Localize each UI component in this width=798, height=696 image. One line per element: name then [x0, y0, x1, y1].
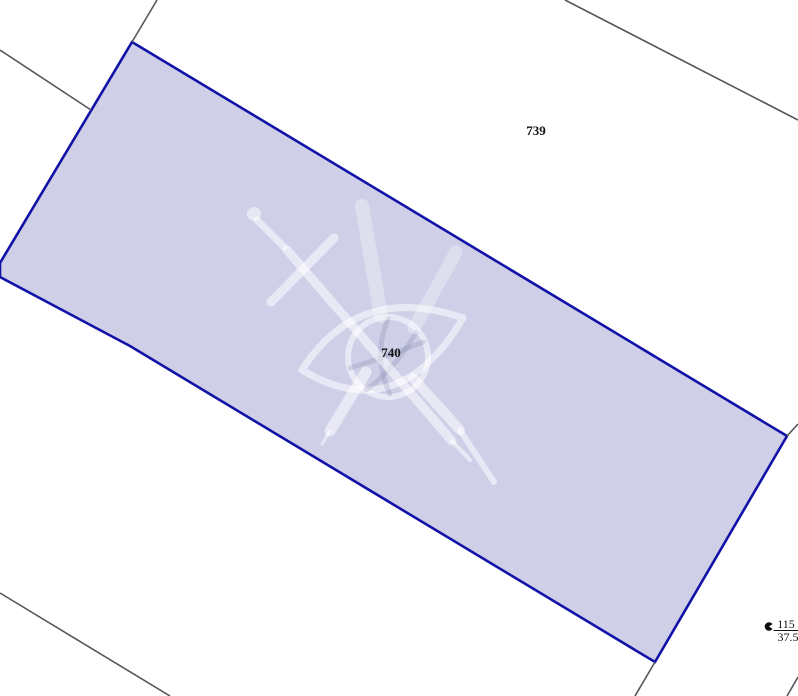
parcel-label-740: 740	[381, 345, 401, 360]
survey-point-denominator: 37.5	[778, 630, 798, 644]
survey-point-numerator: 115	[777, 617, 795, 631]
map-svg: 739 740 115 37.5	[0, 0, 798, 696]
cadastral-map-canvas[interactable]: 739 740 115 37.5	[0, 0, 798, 696]
parcel-label-739: 739	[526, 123, 546, 138]
